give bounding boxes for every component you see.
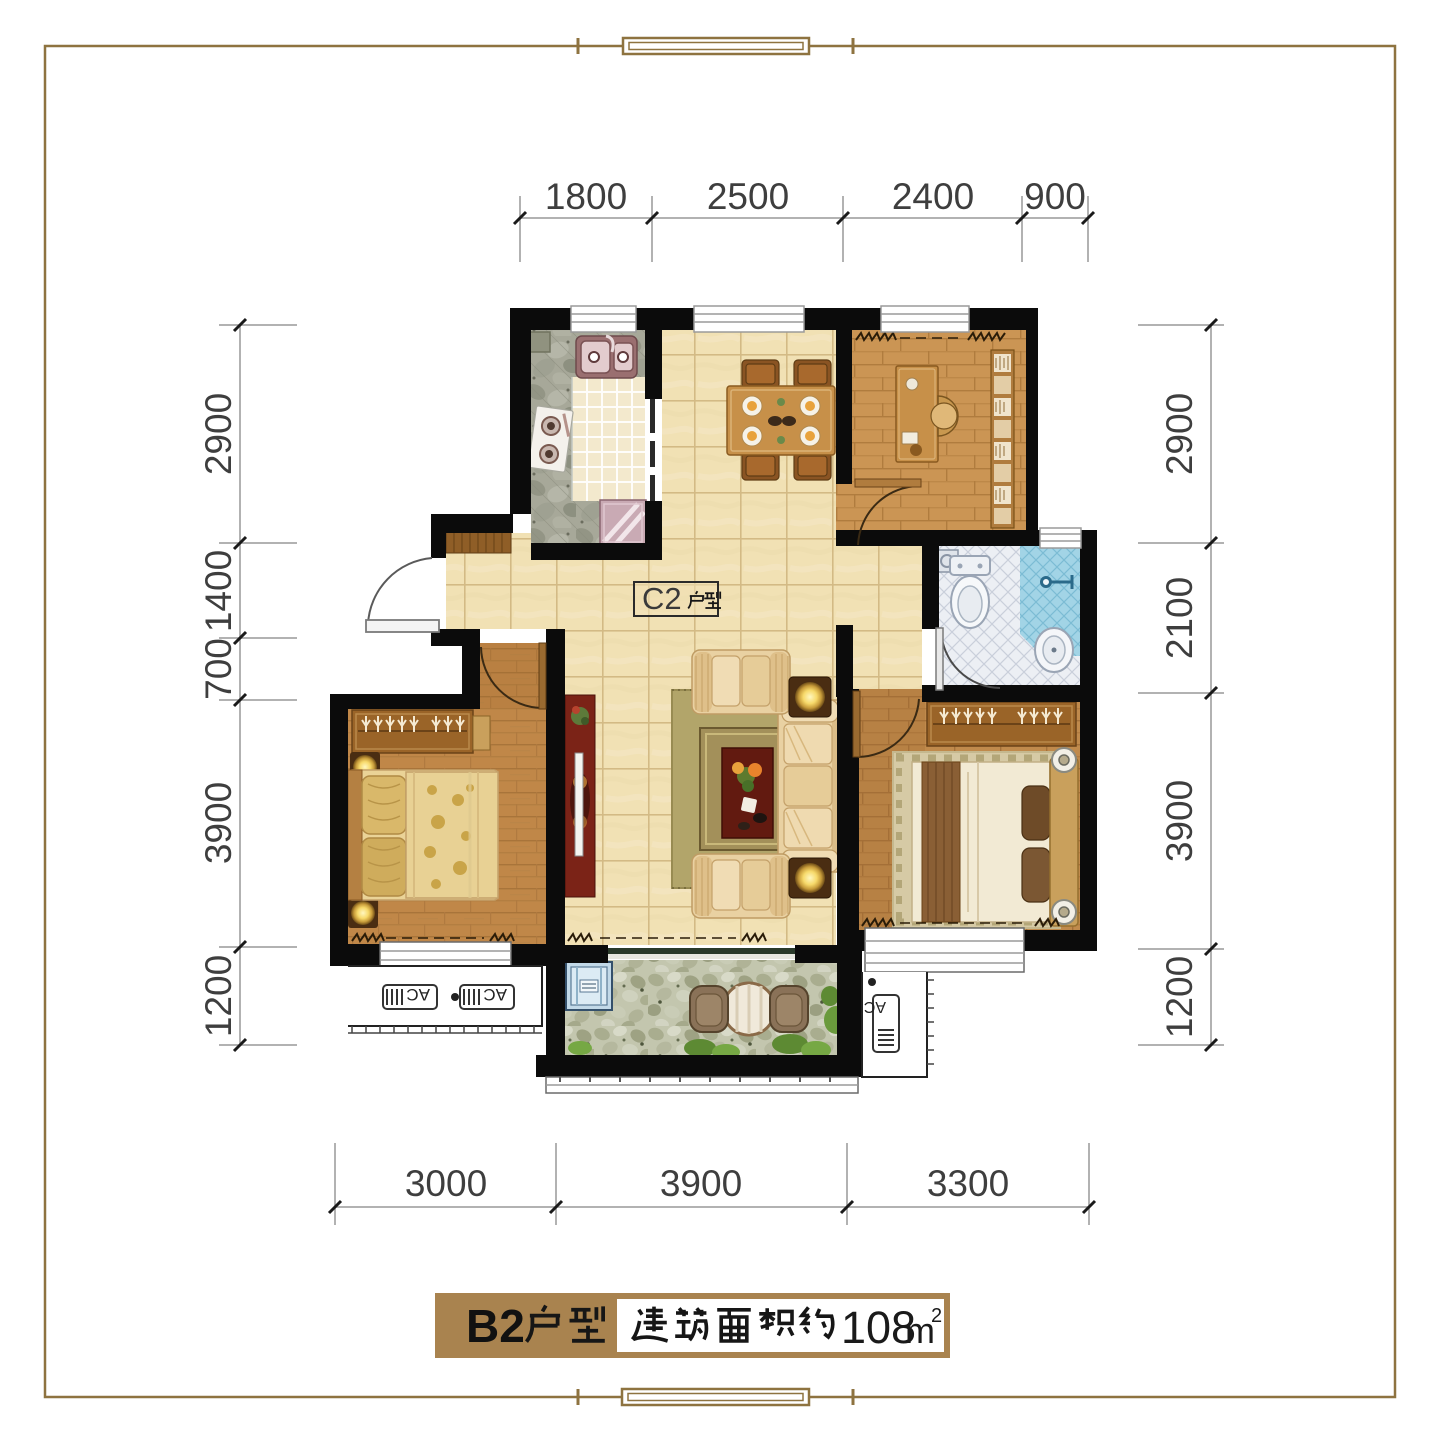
svg-text:1800: 1800: [545, 176, 627, 217]
svg-text:B2: B2: [466, 1300, 525, 1352]
svg-text:3900: 3900: [660, 1163, 742, 1204]
svg-text:2400: 2400: [892, 176, 974, 217]
svg-text:1400: 1400: [198, 550, 239, 632]
svg-text:C2: C2: [642, 581, 682, 616]
svg-text:AC: AC: [406, 985, 430, 1004]
svg-text:3900: 3900: [198, 782, 239, 864]
svg-text:3000: 3000: [405, 1163, 487, 1204]
svg-text:2: 2: [931, 1305, 942, 1327]
svg-text:AC: AC: [864, 998, 886, 1015]
svg-text:3900: 3900: [1159, 780, 1200, 862]
svg-text:3300: 3300: [927, 1163, 1009, 1204]
svg-text:700: 700: [198, 638, 239, 700]
svg-text:2900: 2900: [1159, 393, 1200, 475]
svg-text:900: 900: [1024, 176, 1086, 217]
svg-text:AC: AC: [483, 985, 507, 1004]
svg-text:1200: 1200: [1159, 956, 1200, 1038]
svg-text:2500: 2500: [707, 176, 789, 217]
svg-text:1200: 1200: [198, 955, 239, 1037]
svg-text:2900: 2900: [198, 393, 239, 475]
svg-text:2100: 2100: [1159, 577, 1200, 659]
